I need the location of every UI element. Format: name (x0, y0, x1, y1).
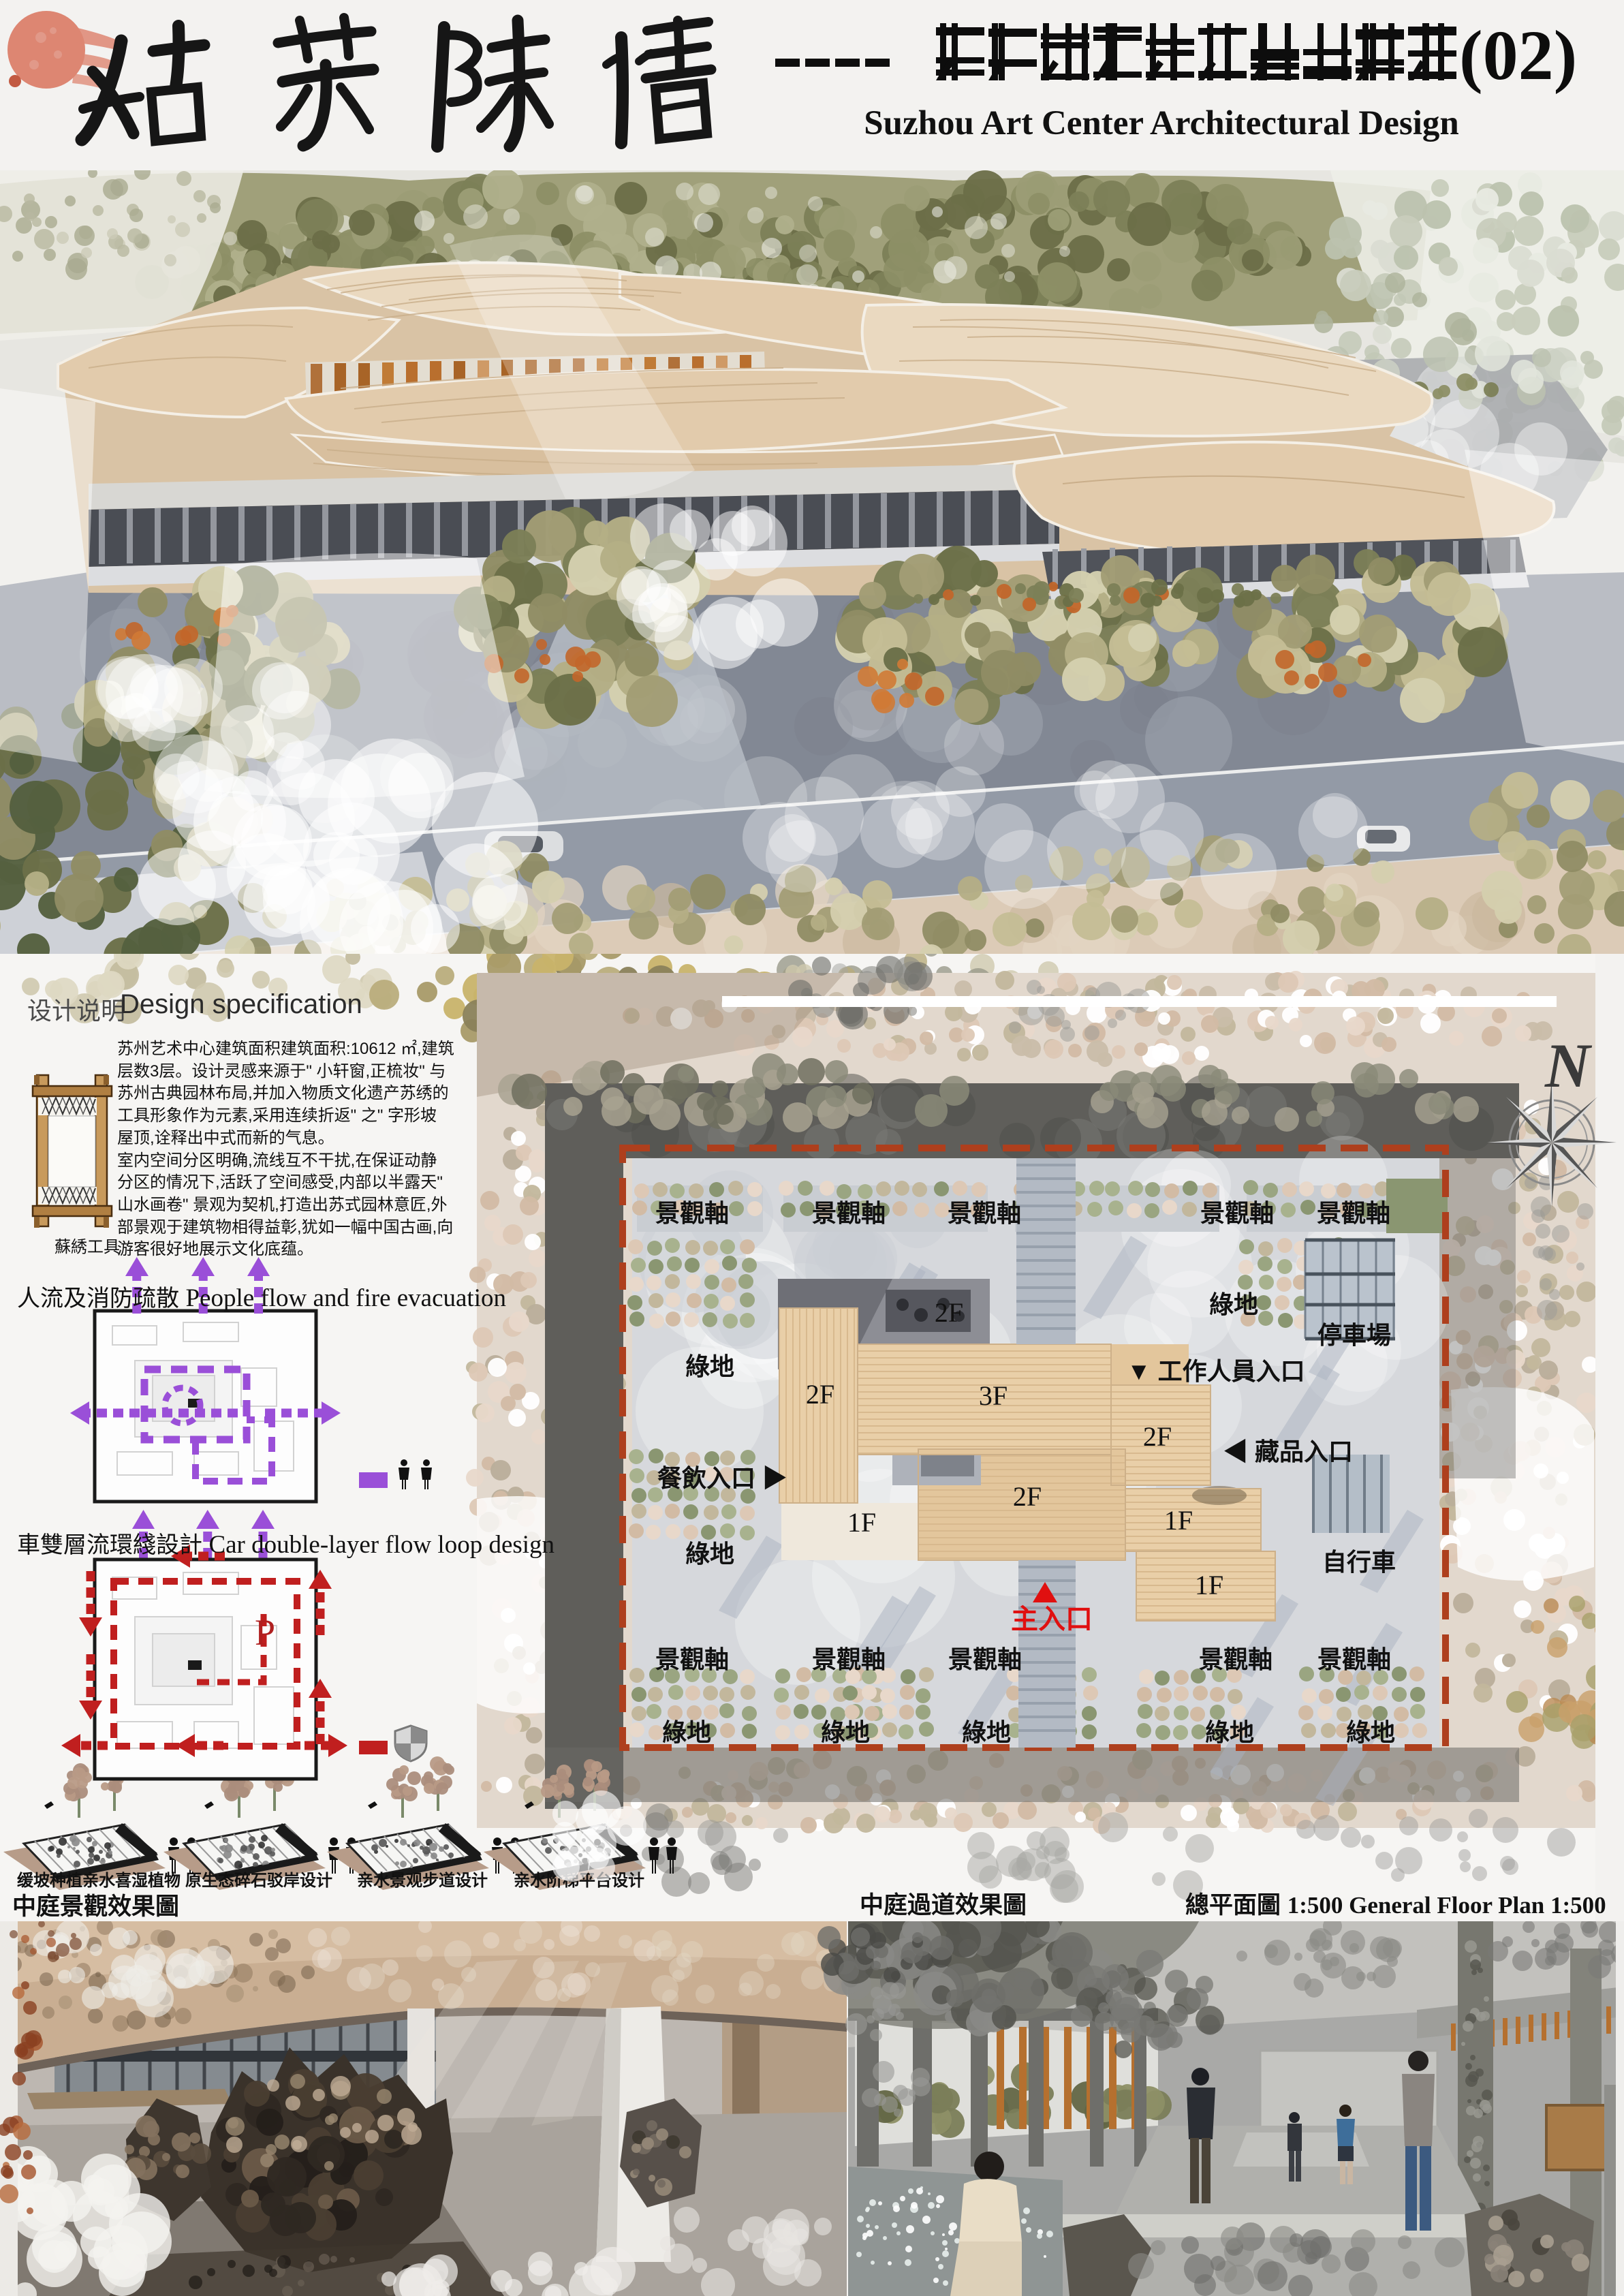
svg-text:餐飲入口 ▶: 餐飲入口 ▶ (657, 1464, 787, 1492)
svg-text:景觀軸: 景觀軸 (948, 1199, 1021, 1227)
svg-text:綠地: 綠地 (1346, 1718, 1395, 1746)
svg-text:自行車: 自行車 (1322, 1548, 1396, 1576)
svg-text:總平面圖 1:500 General Floor Pl: 總平面圖 1:500 General Floor Plan 1:500 (1185, 1892, 1606, 1919)
svg-text:2F: 2F (935, 1297, 963, 1328)
svg-text:2F: 2F (1143, 1421, 1172, 1452)
svg-text:(02): (02) (1459, 16, 1577, 95)
svg-text:1F: 1F (1164, 1505, 1193, 1536)
svg-text:景觀軸: 景觀軸 (948, 1645, 1022, 1673)
svg-text:停車場: 停車場 (1317, 1321, 1391, 1349)
svg-text:N: N (1544, 1031, 1593, 1100)
svg-text:綠地: 綠地 (662, 1718, 711, 1746)
svg-text:1F: 1F (847, 1507, 876, 1538)
svg-text:Suzhou Art Center Architectura: Suzhou Art Center Architectural Design (864, 104, 1459, 142)
svg-text:景觀軸: 景觀軸 (1200, 1199, 1274, 1227)
svg-text:綠地: 綠地 (962, 1718, 1011, 1746)
svg-text:綠地: 綠地 (821, 1718, 870, 1746)
svg-text:景觀軸: 景觀軸 (812, 1645, 886, 1673)
svg-text:綠地: 綠地 (685, 1540, 734, 1568)
svg-text:3F: 3F (979, 1380, 1008, 1411)
svg-text:綠地: 綠地 (1205, 1718, 1254, 1746)
svg-text:景觀軸: 景觀軸 (1317, 1645, 1391, 1673)
svg-text:景觀軸: 景觀軸 (655, 1199, 729, 1227)
svg-text:景觀軸: 景觀軸 (1317, 1199, 1390, 1227)
svg-text:景觀軸: 景觀軸 (812, 1199, 886, 1227)
svg-text:綠地: 綠地 (685, 1352, 734, 1380)
svg-text:景觀軸: 景觀軸 (655, 1645, 729, 1673)
svg-text:◀ 藏品入口: ◀ 藏品入口 (1223, 1438, 1353, 1465)
svg-text:1F: 1F (1195, 1570, 1223, 1600)
svg-text:P: P (255, 1612, 275, 1653)
svg-text:2F: 2F (806, 1379, 834, 1410)
svg-text:綠地: 綠地 (1209, 1290, 1258, 1318)
svg-text:▼ 工作人員入口: ▼ 工作人員入口 (1127, 1357, 1305, 1385)
svg-text:主入口: 主入口 (1011, 1604, 1093, 1634)
svg-text:景觀軸: 景觀軸 (1199, 1645, 1272, 1673)
svg-text:2F: 2F (1013, 1481, 1042, 1512)
svg-text:中庭過道效果圖: 中庭過道效果圖 (860, 1891, 1027, 1919)
